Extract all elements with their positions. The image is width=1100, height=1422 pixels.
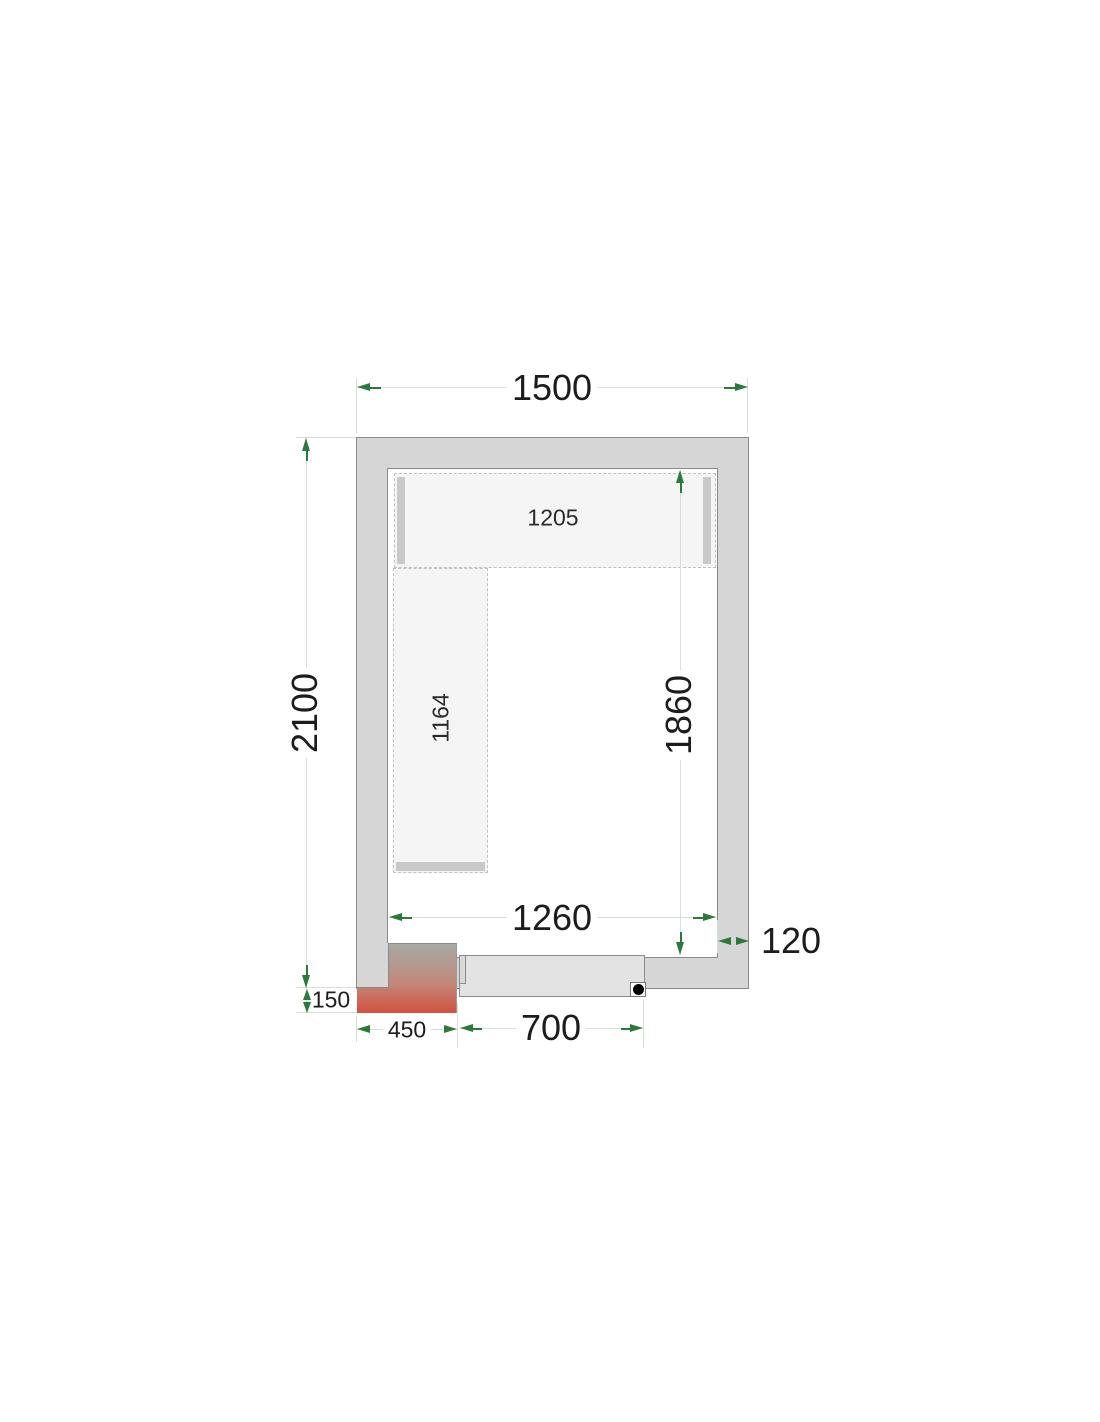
- dim-label-inner-width: 1260: [507, 900, 597, 936]
- floor-plan-canvas: 1500 2100 1860 1260 120 150 450 700 1205…: [0, 0, 1100, 1422]
- dim-label-unit-overhang: 150: [307, 989, 355, 1012]
- arrowhead: [676, 470, 684, 483]
- arrowhead: [735, 383, 748, 391]
- door-leaf: [459, 955, 645, 997]
- arrow-tail: [473, 1028, 482, 1030]
- arrow-tail: [306, 451, 308, 461]
- arrow-tail: [724, 387, 735, 389]
- dim-label-wall-thickness: 120: [756, 923, 826, 959]
- arrowhead: [703, 913, 716, 921]
- dim-label-outer-depth: 2100: [287, 668, 323, 758]
- arrow-tail: [680, 932, 682, 942]
- door-rebate-left: [459, 955, 466, 984]
- dim-label-door-width: 700: [516, 1010, 586, 1046]
- wall-corner-overlay: [356, 943, 389, 988]
- arrowhead: [357, 1025, 370, 1033]
- arrowhead: [389, 913, 402, 921]
- dim-label-inner-depth: 1860: [661, 670, 697, 760]
- dim-label-unit-width: 450: [383, 1019, 431, 1042]
- top-shelf-support-left: [397, 477, 405, 564]
- arrowhead: [302, 438, 310, 451]
- arrow-tail: [370, 387, 381, 389]
- arrowhead: [718, 937, 731, 945]
- dim-label-outer-width: 1500: [507, 370, 597, 406]
- arrow-tail: [621, 1028, 630, 1030]
- arrowhead: [736, 937, 749, 945]
- arrowhead: [302, 975, 310, 988]
- arrowhead: [444, 1025, 457, 1033]
- ext-line-700-right: [643, 999, 644, 1048]
- arrowhead: [357, 383, 370, 391]
- arrowhead: [676, 942, 684, 955]
- door-hinge-dot: [633, 984, 644, 995]
- ext-line-450-right: [457, 1003, 458, 1048]
- left-shelf-support-bottom: [396, 862, 485, 871]
- arrow-tail: [402, 917, 412, 919]
- dim-label-left-shelf-length: 1164: [430, 688, 453, 747]
- dim-label-top-shelf-length: 1205: [522, 507, 583, 530]
- arrow-tail: [693, 917, 703, 919]
- arrowhead: [460, 1024, 473, 1032]
- top-shelf-support-right: [703, 477, 711, 564]
- arrow-tail: [306, 965, 308, 975]
- arrow-tail: [680, 483, 682, 493]
- arrowhead: [630, 1024, 643, 1032]
